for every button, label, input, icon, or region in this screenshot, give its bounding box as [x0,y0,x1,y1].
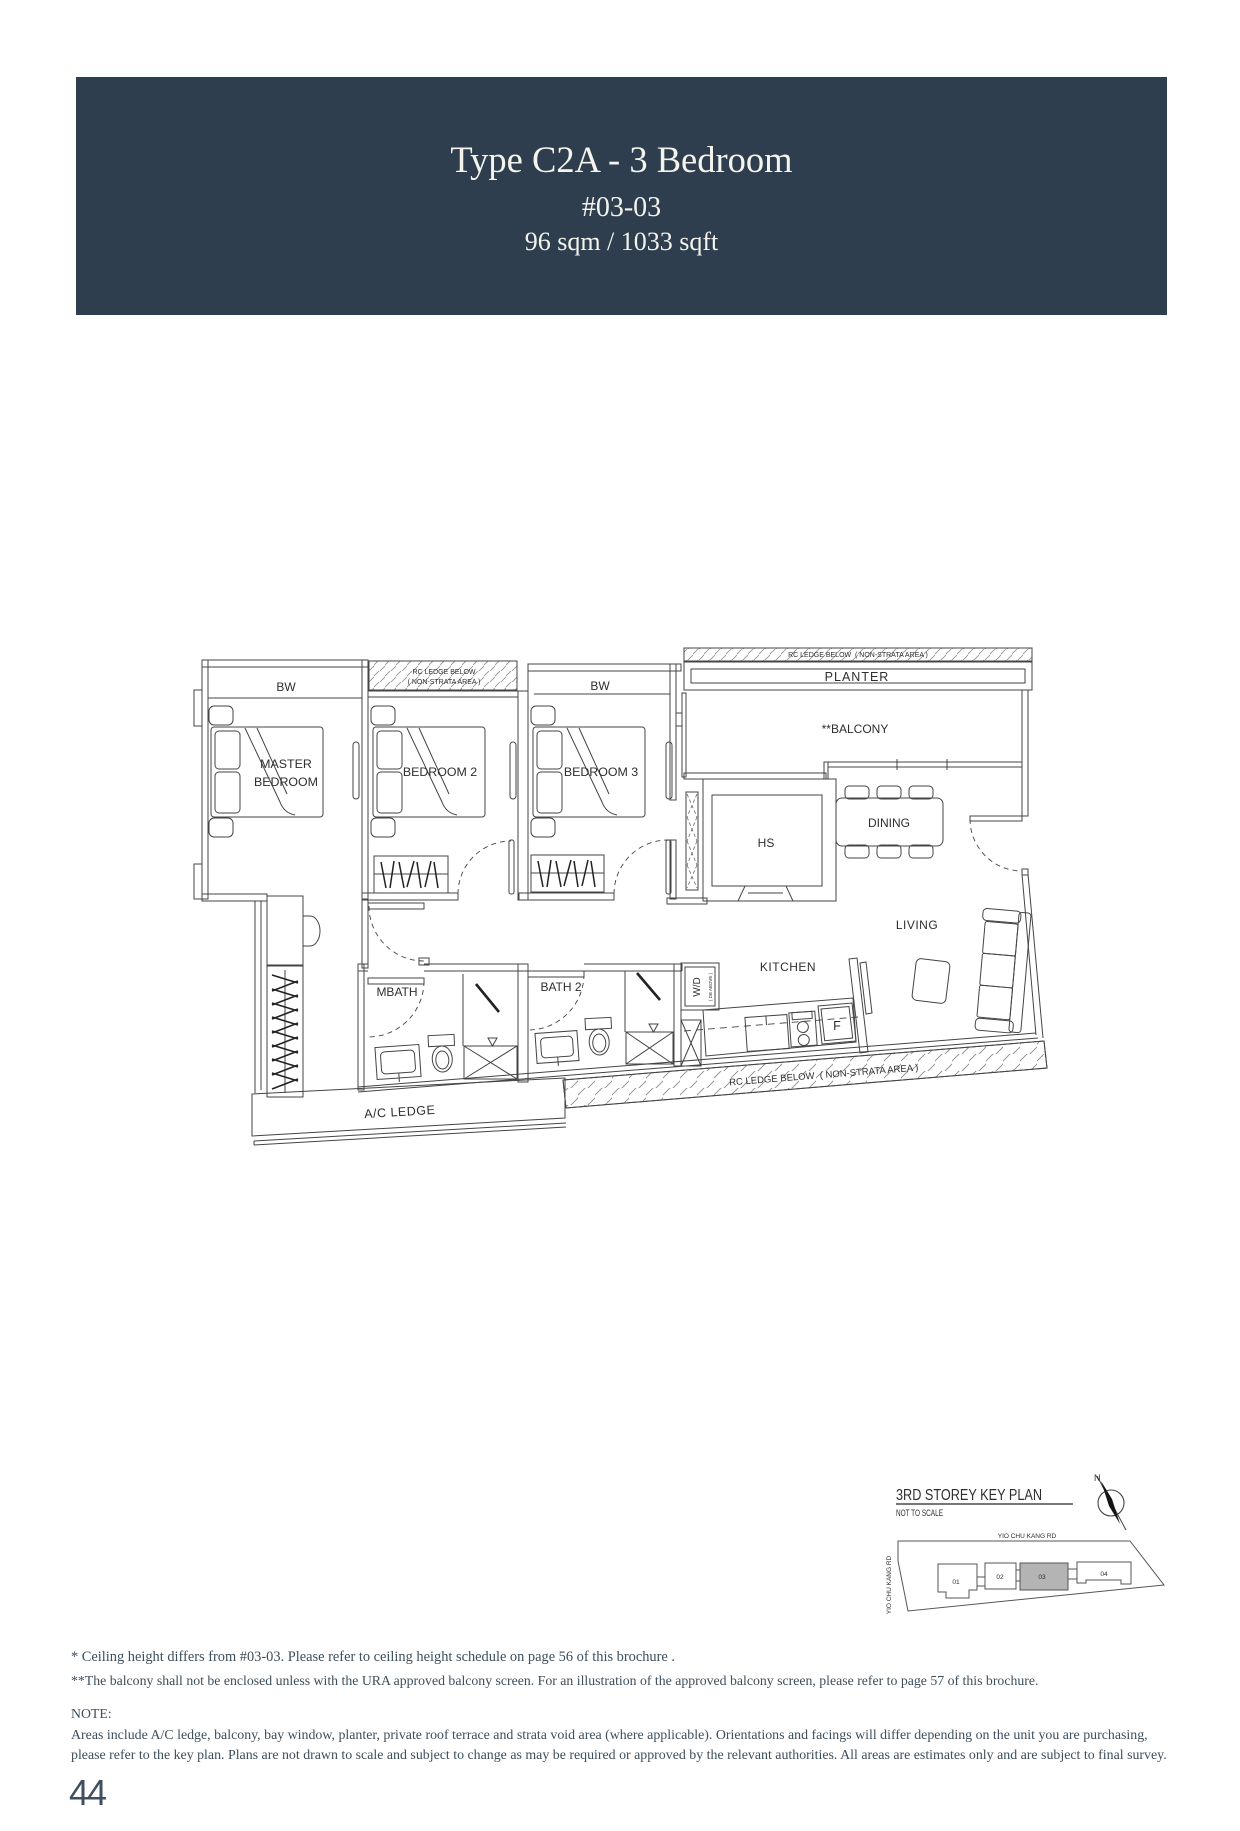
svg-text:DINING: DINING [868,816,910,830]
svg-text:RC LEDGE BELOW: RC LEDGE BELOW [412,669,475,676]
svg-text:BEDROOM: BEDROOM [254,775,318,789]
svg-text:BW: BW [276,680,296,694]
svg-text:PLANTER: PLANTER [825,670,890,684]
svg-text:LIVING: LIVING [896,918,938,932]
svg-text:BEDROOM 3: BEDROOM 3 [564,765,638,779]
svg-text:YIO CHU KANG RD: YIO CHU KANG RD [886,1555,893,1614]
svg-text:( DB ABOVE ): ( DB ABOVE ) [708,972,713,1001]
svg-text:BATH 2: BATH 2 [540,980,581,994]
svg-text:BW: BW [590,679,610,693]
svg-text:( NON-STRATA AREA ): ( NON-STRATA AREA ) [408,679,481,686]
svg-text:01: 01 [952,1579,960,1586]
svg-text:BEDROOM 2: BEDROOM 2 [403,765,477,779]
svg-text:MBATH: MBATH [376,985,417,999]
svg-text:A/C LEDGE: A/C LEDGE [364,1103,436,1121]
svg-text:HS: HS [758,836,775,850]
svg-text:W/D: W/D [692,977,703,996]
svg-text:04: 04 [1100,1571,1108,1578]
svg-text:YIO CHU KANG RD: YIO CHU KANG RD [998,1533,1057,1540]
svg-text:MASTER: MASTER [260,757,312,771]
svg-text:RC LEDGE BELOW ( NON-STRATA A: RC LEDGE BELOW ( NON-STRATA AREA ) [788,652,928,659]
svg-text:F: F [833,1019,841,1033]
svg-text:N: N [1094,1473,1101,1483]
svg-text:03: 03 [1038,1574,1046,1581]
svg-text:KITCHEN: KITCHEN [760,960,816,974]
svg-text:NOT TO SCALE: NOT TO SCALE [896,1508,943,1518]
svg-text:02: 02 [996,1574,1004,1581]
svg-text:**BALCONY: **BALCONY [822,722,889,736]
svg-text:3RD STOREY KEY PLAN: 3RD STOREY KEY PLAN [896,1487,1042,1504]
